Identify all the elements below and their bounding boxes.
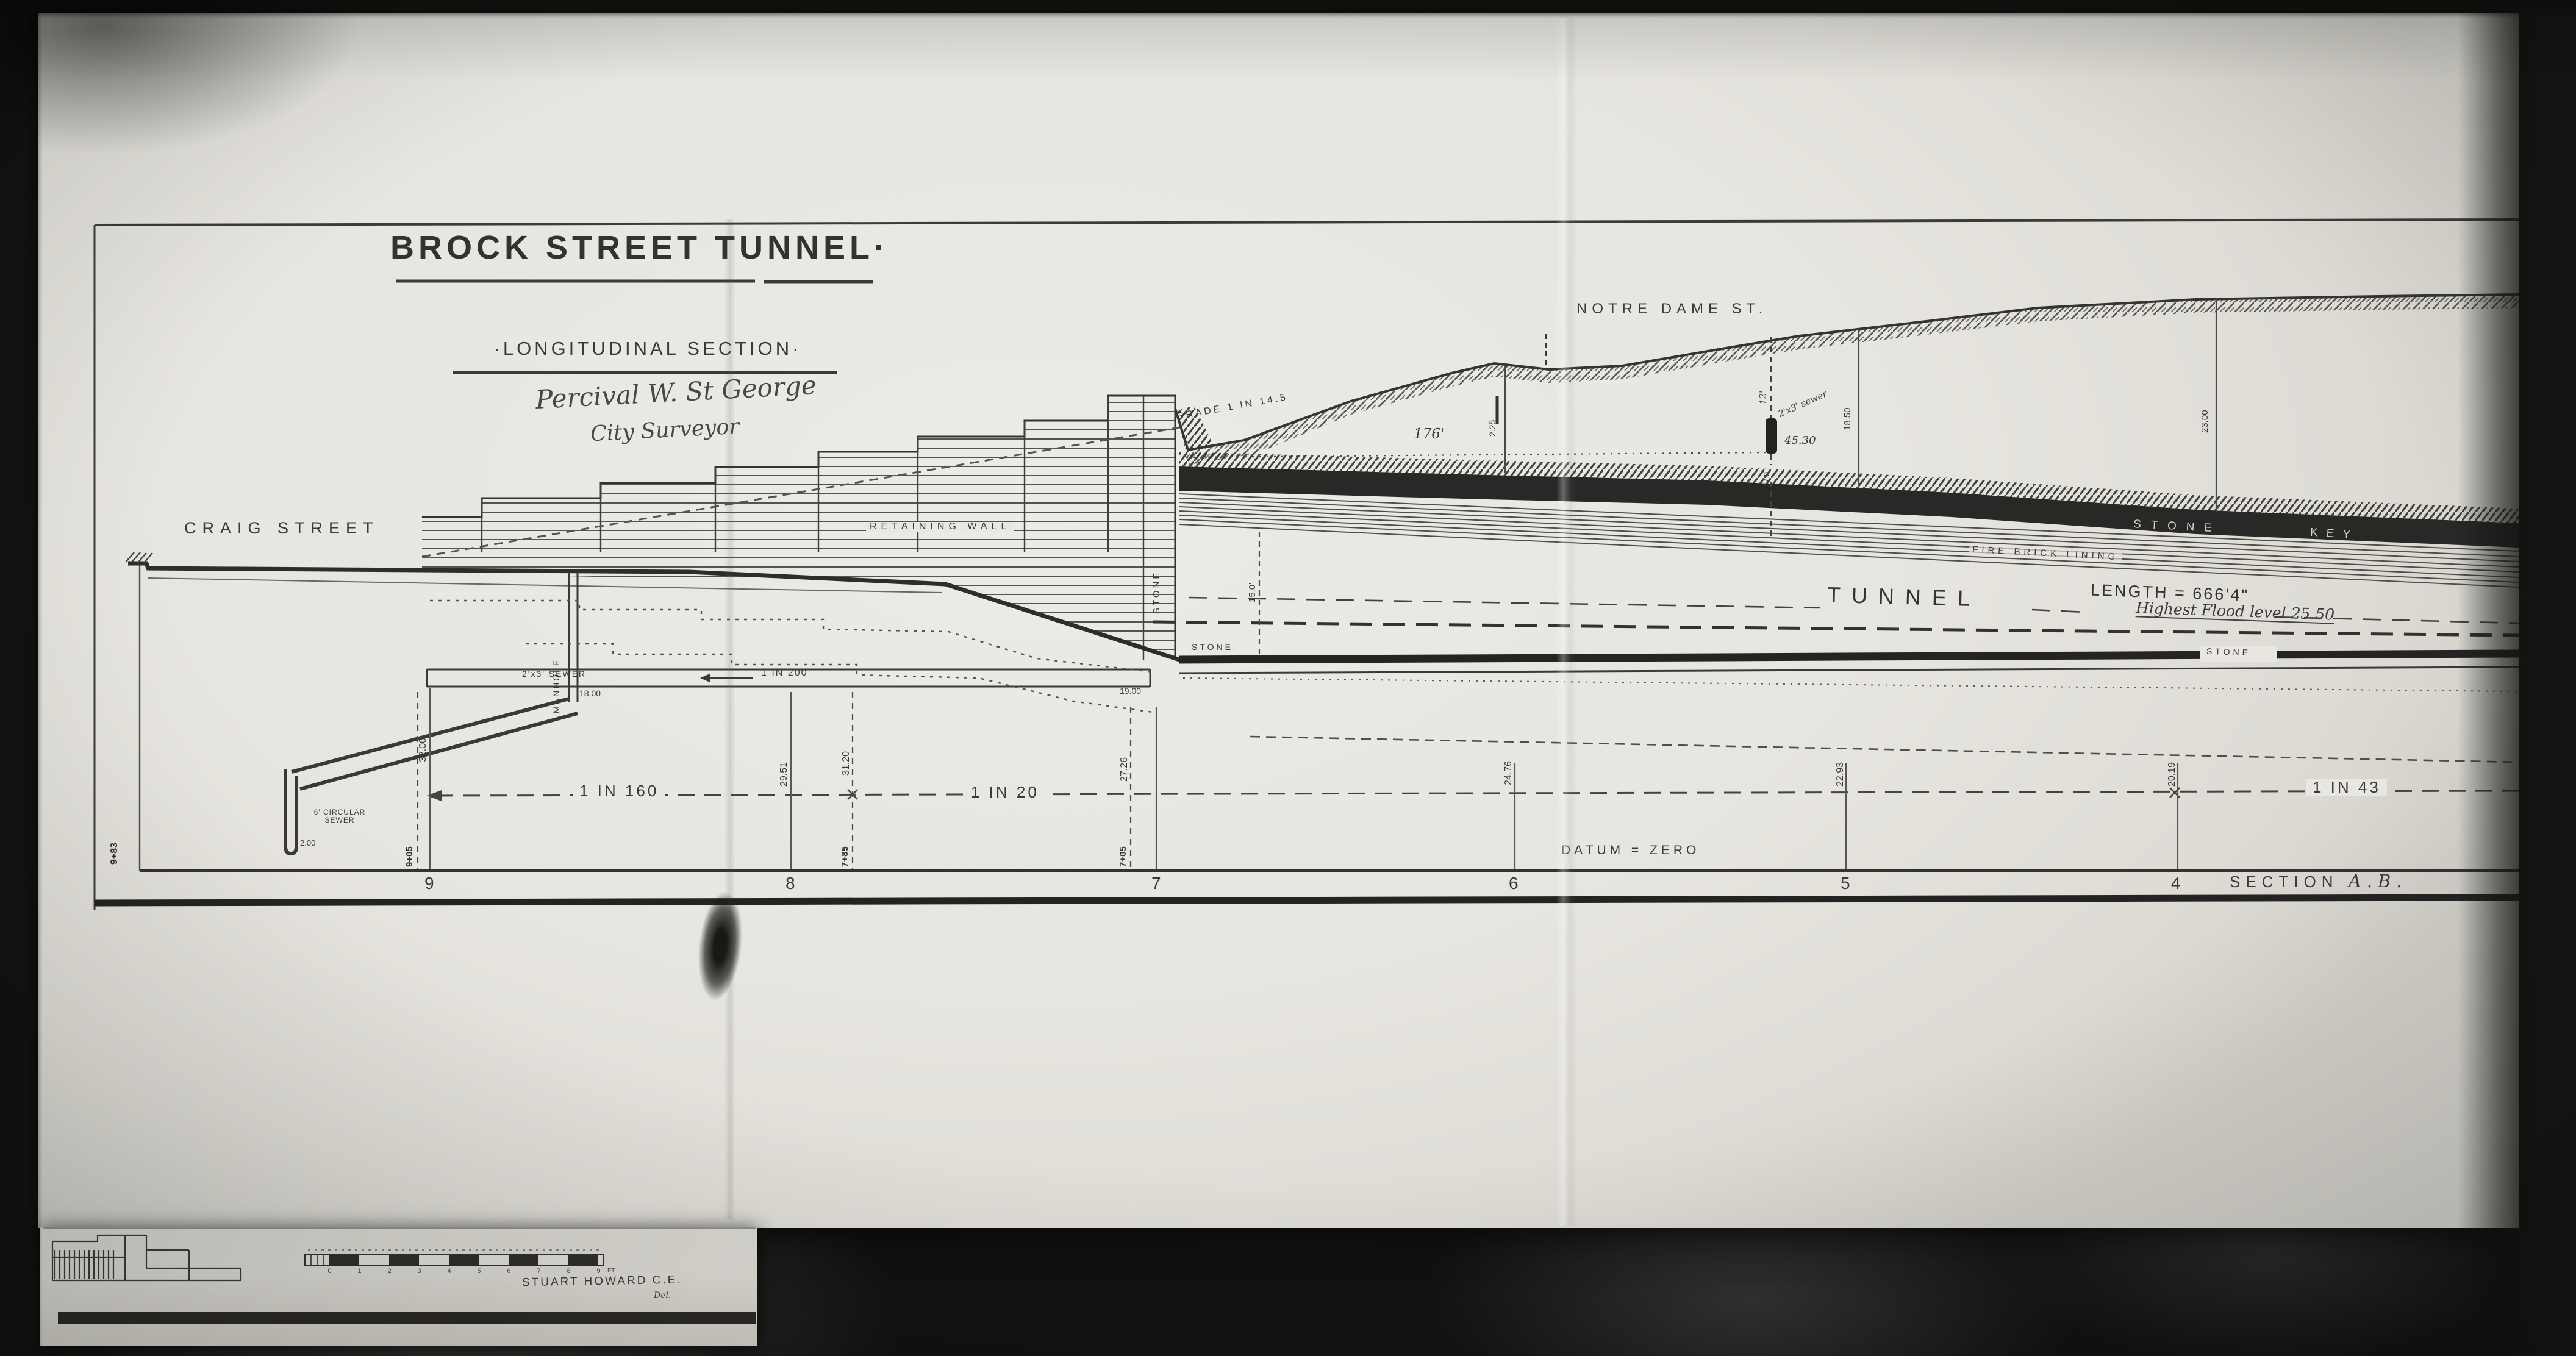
stone-key-right: KEY: [2310, 527, 2360, 541]
sta8-num: 8: [785, 874, 795, 892]
scan-shadow-right: [2458, 0, 2576, 1356]
floor-stone-right: STONE: [2206, 647, 2251, 657]
drawing-linework: [0, 0, 2576, 1356]
drawing-subtitle: ·LONGITUDINAL SECTION·: [453, 339, 843, 359]
sta5-num: 5: [1841, 874, 1850, 892]
depth-dim-2: 18.50: [1843, 389, 1853, 430]
crossing-elev: 45.30: [1784, 435, 1816, 447]
section-label: SECTION A.B.: [2230, 872, 2408, 890]
depth-dim-1: 2.25: [1488, 405, 1497, 437]
sta9-elev: 32.00: [418, 718, 429, 762]
sta4-num: 4: [2171, 874, 2181, 892]
datum-label: DATUM = ZERO: [1561, 844, 1700, 857]
sta6-num: 6: [1509, 874, 1519, 892]
depth-dim-3: 23.00: [2200, 385, 2210, 433]
box-sewer-grade-label: 1 IN 200: [761, 668, 807, 679]
sta8-aux-chain: 7+85: [840, 824, 850, 867]
fold-crease-light: [1556, 18, 1577, 1226]
floor-stone-left: STONE: [1189, 643, 1236, 652]
grade-1in160: 1 IN 160: [573, 783, 665, 799]
box-sewer-label: 2'x3' SEWER: [522, 669, 586, 679]
sta5-elev: 22.93: [1836, 740, 1846, 787]
fold-crease-dark: [724, 219, 735, 1219]
sta7-elev: 27.26: [1120, 735, 1130, 782]
scale-bar-unit: FT: [607, 1268, 615, 1275]
notre-dame-street-label: NOTRE DAME ST.: [1576, 301, 1767, 316]
scan-shadow-left: [0, 0, 43, 1356]
sta8-aux-elev: 31.20: [842, 730, 852, 776]
sta4-elev: 20.19: [2167, 740, 2178, 787]
section-word: SECTION: [2230, 872, 2339, 891]
sta6-elev: 24.76: [1504, 739, 1514, 785]
chainage-start-label: 9+83: [110, 822, 120, 865]
grade-1in20: 1 IN 20: [965, 784, 1045, 801]
box-sewer-invert-left: 18.00: [579, 689, 601, 698]
approach-length-label: 176': [1414, 427, 1444, 441]
manhole-label: MANHOLE: [552, 610, 561, 713]
scan-shadow-top: [0, 0, 2576, 18]
sta7-chain: 7+05: [1118, 824, 1128, 867]
circular-sewer-label: 6' CIRCULAR SEWER: [300, 808, 379, 824]
section-name: A.B.: [2349, 871, 2408, 891]
credit-del: Del.: [654, 1291, 671, 1301]
tunnel-word: TUNNEL: [1827, 583, 1981, 610]
sta9-chain: 9+05: [405, 824, 415, 867]
circular-sewer-invert: 2.00: [300, 839, 315, 847]
box-sewer-invert-right: 19.00: [1120, 687, 1141, 696]
scale-bar-ticks: 0123456789: [315, 1268, 614, 1275]
sta9-num: 9: [424, 874, 434, 892]
sta7-num: 7: [1151, 874, 1161, 892]
tunnel-height-dim: 15.0': [1248, 554, 1258, 602]
grade-1in43: 1 IN 43: [2306, 779, 2387, 796]
drawing-title: BROCK STREET TUNNEL·: [390, 230, 878, 265]
scanned-drawing-page: { "title": {"main": "BROCK STREET TUNNEL…: [0, 0, 2576, 1356]
crossing-below: 7.0: [1762, 457, 1771, 483]
crossing-depth: 12': [1759, 377, 1769, 405]
sta8-elev: 29.51: [779, 740, 790, 787]
craig-street-label: CRAIG STREET: [184, 519, 379, 537]
portal-stone-label: STONE: [1152, 538, 1162, 614]
retaining-wall-label: RETAINING WALL: [866, 522, 1014, 532]
